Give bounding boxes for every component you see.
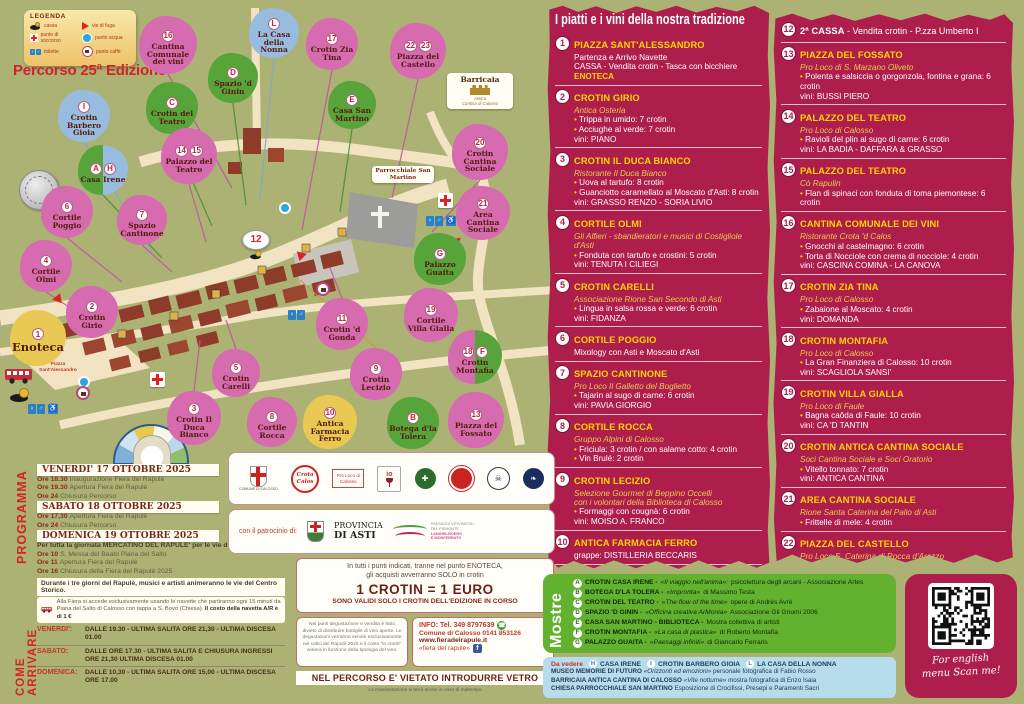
marker-number-badge: 23: [419, 40, 432, 52]
menu-item-line: vini: SCAGLIOLA SANSI': [800, 368, 1006, 378]
map-marker: 21Area Cantina Sociale: [456, 186, 510, 240]
map-marker: 10Antica Farmacia Ferro: [303, 395, 357, 449]
marker-badges: L: [268, 18, 280, 30]
map-markers-layer: 16Cantina Comunale dei viniLLa Casa dell…: [0, 0, 555, 460]
map-marker: 13Piazza del Fossato: [448, 392, 504, 448]
marker-number-badge: I: [78, 101, 90, 113]
marker-number-badge: 20: [474, 137, 487, 149]
shuttle-bus-icon: [41, 602, 53, 617]
menu-item-title: CANTINA COMUNALE DEI VINI: [800, 214, 1006, 232]
menu-item-title: ANTICA FARMACIA FERRO: [574, 533, 762, 551]
shuttle-times-table: VENERDI':DALLE 19.30 - ULTIMA SALITA ORE…: [37, 624, 285, 687]
marker-number-badge: 22: [404, 40, 417, 52]
menu-item-subtitle: Pro Loco di Calosso: [800, 349, 1006, 358]
menu-item-subtitle: Pro Loco di Calosso: [800, 295, 1006, 304]
marker-number-badge: 9: [370, 363, 382, 375]
menu-item: 4CORTILE OLMIGli Alfieri - sbandieratori…: [555, 211, 762, 274]
marker-badges: B: [407, 412, 419, 424]
da-vedere-spot: LLA CASA DELLA NONNA: [746, 660, 837, 668]
marker-badges: 8: [266, 411, 278, 423]
item-number-badge: 14: [781, 109, 796, 124]
marker-number-badge: 19: [425, 304, 438, 316]
marker-badges: 11: [336, 313, 348, 325]
marker-number-badge: 4: [40, 255, 52, 267]
program-row: Ore 16 Chiusura della Fiera del Rapulè 2…: [37, 568, 285, 576]
menu-item-line: Mixology con Asti e Moscato d'Asti: [574, 348, 762, 358]
da-vedere-label: Da vedere: [551, 661, 583, 668]
marker-number-badge: F: [476, 346, 488, 358]
da-vedere-box: Da vedereHCASA IRENEICROTIN BARBERO GIOI…: [543, 657, 896, 698]
menu-item-body: 2ª CASSA - Vendita crotin - P.zza Umbert…: [800, 21, 1006, 39]
website-link[interactable]: www.fieradelrapule.it: [419, 637, 547, 644]
marker-label: Crotin Lecizio: [350, 376, 402, 392]
qr-code[interactable]: [928, 583, 994, 649]
menu-item: 19CROTIN VILLA GIALLAPro Loco di FauleBa…: [781, 381, 1006, 434]
marker-number-badge: 13: [470, 409, 483, 421]
phone-icon: ☎: [497, 621, 506, 630]
menu-item-line: vini: BUSSI PIERO: [800, 92, 1006, 102]
marker-label: Palazzo del Teatro: [161, 158, 217, 174]
menu-item-subtitle: con i volontari della Biblioteca di Calo…: [574, 498, 762, 507]
marker-badges: 6: [61, 201, 73, 213]
menu-item-title: CORTILE OLMI: [574, 214, 762, 232]
menu-item-line: Torta di Nocciole con crema di nocciole:…: [800, 252, 1006, 262]
menu-item: 14PALAZZO DEL TEATROPro Loco di CalossoR…: [781, 105, 1006, 158]
menu-item-title: PIAZZA SANT'ALESSANDRO: [574, 35, 762, 53]
menu-item-body: PALAZZO DEL TEATROCò RapulinFlan di spin…: [800, 161, 1006, 208]
item-number-badge: 13: [781, 46, 796, 61]
marker-badges: 16: [162, 30, 175, 42]
marker-label: Crotin Zia Tina: [306, 46, 358, 62]
menu-item-subtitle: Rione Santa Caterina del Palio di Asti: [800, 508, 1006, 517]
langhe-roero-monferrato-logo: PAESAGGI VITIVINICOLIDEL PIEMONTELANGHE-…: [393, 522, 475, 540]
menu-item-line: Tajarin al sugo di carne: 6 crotin: [574, 391, 762, 401]
marker-number-badge: 16: [162, 30, 175, 42]
map-marker: ECasa San Martino: [328, 81, 376, 129]
programma-label: PROGRAMMA: [15, 468, 29, 564]
spot-letter-badge: I: [647, 660, 655, 668]
da-vedere-spot: ICROTIN BARBERO GIOIA: [647, 660, 740, 668]
map-marker: BBotega d'la Tolera: [387, 397, 439, 449]
shuttle-time-row: VENERDI':DALLE 19.30 - ULTIMA SALITA ORE…: [37, 624, 285, 644]
crotin-rate: 1 CROTIN = 1 EURO: [297, 582, 553, 597]
menu-item: 9CROTIN LECIZIOSelezione Gourmet di Bepp…: [555, 468, 762, 531]
marker-label: Cantina Comunale dei vini: [139, 43, 197, 67]
shuttle-time-row: SABATO:DALLE ORE 17.30 - ULTIMA SALITA E…: [37, 645, 285, 666]
menu-item-body: CROTIN 'D GONDAAssociazione Amici di Cal…: [574, 567, 762, 570]
menu-item-line: Partenza e Arrivo Navette: [574, 53, 762, 63]
patrocinio-label: con il patrocinio di:: [239, 528, 297, 535]
menu-item: 1PIAZZA SANT'ALESSANDROPartenza e Arrivo…: [555, 32, 762, 86]
item-number-badge: 1: [555, 36, 570, 51]
marker-number-badge: D: [227, 67, 239, 79]
marker-label: Casa Irene: [79, 176, 128, 184]
qr-panel: For englishmenu Scan me!: [905, 574, 1017, 698]
info-box: INFO: Tel. 349 8797639☎ Comune di Caloss…: [412, 617, 554, 667]
menu-item-title: CROTIN VILLA GIALLA: [800, 384, 1006, 402]
menu-item-title: CROTIN 'D GONDA: [574, 567, 762, 570]
menu-item-line: vini: MOISO A. FRANCO: [574, 517, 762, 527]
program-day-header: VENERDI' 17 OTTOBRE 2025: [37, 464, 219, 476]
menu-item-line: grappe: DISTILLERIA BECCARIS: [574, 551, 762, 561]
program-row: Ore 11 Apertura Fiera del Rapulè: [37, 559, 285, 567]
map-marker: 17Crotin Zia Tina: [306, 18, 358, 70]
marker-label: Crotin Cantina Sociale: [452, 150, 508, 174]
item-number-badge: 5: [555, 278, 570, 293]
item-number-badge: 9: [555, 472, 570, 487]
menu-item-subtitle: Pro Loco di Faule: [800, 402, 1006, 411]
da-vedere-rows: MUSEO MEMORIE DI FUTURO «Orizzonti ed em…: [551, 668, 888, 694]
marker-number-badge: B: [407, 412, 419, 424]
item-number-badge: 3: [555, 152, 570, 167]
marker-label: Spazio Cantinone: [117, 222, 167, 238]
marker-badges: E: [346, 94, 358, 106]
menu-item-title: CORTILE POGGIO: [574, 330, 762, 348]
map-marker: 11Crotin 'd Gonda: [316, 298, 368, 350]
menu-item-line: Flan di spinaci con fonduta di toma piem…: [800, 189, 1006, 208]
da-vedere-row: CHIESA PARROCCHIALE SAN MARTINO Esposizi…: [551, 685, 888, 694]
mostre-item: FCROTIN MONTAFIA -«La casa di plastica»d…: [573, 628, 888, 638]
marker-number-badge: 21: [477, 198, 490, 210]
marker-label: Crotin Carelli: [212, 375, 260, 391]
marker-number-badge: 10: [324, 407, 337, 419]
shuttle-text: Alla Fiera si accede esclusivamente usan…: [57, 599, 281, 621]
marker-number-badge: 3: [188, 403, 200, 415]
item-number-badge: 8: [555, 418, 570, 433]
marker-number-badge: C: [166, 97, 178, 109]
map-marker: 8Cortile Rocca: [247, 397, 297, 447]
item-number-badge: 18: [781, 332, 796, 347]
menu-item: 13PIAZZA DEL FOSSATOPro Loco di S. Marza…: [781, 43, 1006, 106]
marker-badges: 2: [86, 301, 98, 313]
marker-badges: C: [166, 97, 178, 109]
menu-item-line: vini: TENUTA I CILIEGI: [574, 260, 762, 270]
map-marker: DSpazio 'd Ginin: [208, 53, 258, 103]
marker-number-badge: 14: [175, 145, 188, 157]
menu-column-1: 1PIAZZA SANT'ALESSANDROPartenza e Arrivo…: [555, 32, 762, 570]
menu-item-body: AREA CANTINA SOCIALERione Santa Caterina…: [800, 490, 1006, 527]
menu-item-body: PIAZZA SANT'ALESSANDROPartenza e Arrivo …: [574, 35, 762, 82]
menu-item-body: CROTIN IL DUCA BIANCORistorante Il Duca …: [574, 151, 762, 207]
facebook-row: «fiera del rapule»f: [419, 644, 547, 653]
item-number-badge: 15: [781, 162, 796, 177]
marker-number-badge: A: [90, 163, 102, 175]
menu-item-subtitle: Antica Osteria: [574, 106, 762, 115]
menu-item: 22PIAZZA DEL CASTELLOPro Loco S. Caterin…: [781, 532, 1006, 564]
marker-number-badge: 17: [326, 33, 339, 45]
marker-number-badge: E: [346, 94, 358, 106]
marker-label: Piazza del Fossato: [448, 422, 504, 438]
menu-item: 17CROTIN ZIA TINAPro Loco di CalossoZaba…: [781, 275, 1006, 328]
spot-letter-badge: H: [589, 660, 597, 668]
provincia-asti-crest-icon: [307, 521, 324, 542]
menu-item: 8CORTILE ROCCAGruppo Alpini di CalossoFr…: [555, 415, 762, 468]
menu-item-title: CROTIN CARELLI: [574, 277, 762, 295]
menu-item-body: CORTILE ROCCAGruppo Alpini di CalossoFri…: [574, 417, 762, 464]
crotin-rules-box: In tutti i punti indicati, tranne nel pu…: [296, 558, 554, 613]
blue-club-logo: ❧: [523, 468, 544, 489]
program-day-header: SABATO 18 OTTOBRE 2025: [37, 501, 219, 513]
mostre-item: CCROTIN DEL TEATRO -«The flow of the tim…: [573, 598, 888, 608]
menu-item: 18CROTIN MONTAFIAPro Loco di CalossoLa G…: [781, 328, 1006, 381]
map-marker: 6Cortile Poggio: [41, 186, 93, 238]
menu-item-title: PIAZZA DEL CASTELLO: [800, 534, 1006, 552]
menu-item-title: SPAZIO CANTINONE: [574, 364, 762, 382]
menu-item-line: vini: PAVIA GIORGIO: [574, 401, 762, 411]
map-marker: LLa Casa della Nonna: [249, 8, 299, 58]
map-marker: 7Spazio Cantinone: [117, 195, 167, 245]
crotin-line3: SONO VALIDI SOLO I CROTIN DELL'EDIZIONE …: [297, 598, 553, 605]
mostre-item: ACROTIN CASA IRENE -«Il viaggio nell'ani…: [573, 578, 888, 588]
marker-badges: 19: [425, 304, 438, 316]
menu-item-subtitle: Associazione Rione San Secondo di Asti: [574, 295, 762, 304]
menu-item: 15PALAZZO DEL TEATROCò RapulinFlan di sp…: [781, 159, 1006, 212]
da-vedere-row: BARRICAIA ANTICA CANTINA DI CALOSSO «Vit…: [551, 677, 888, 686]
marker-label: Spazio 'd Ginin: [208, 80, 258, 96]
menu-item-body: CROTIN CARELLIAssociazione Rione San Sec…: [574, 277, 762, 324]
marker-badges: 2223: [404, 40, 432, 52]
comune-calosso-logo: COMUNE DI CALOSSO: [239, 466, 278, 492]
map-marker: 1415Palazzo del Teatro: [161, 128, 217, 184]
marker-number-badge: 11: [336, 313, 348, 325]
da-vedere-spots: Da vedereHCASA IRENEICROTIN BARBERO GIOI…: [551, 660, 888, 668]
crotin-line1: In tutti i punti indicati, tranne nel pu…: [297, 563, 553, 572]
menu-item-body: PALAZZO DEL TEATROPro Loco di CalossoRav…: [800, 108, 1006, 155]
marker-badges: 1415: [175, 145, 203, 157]
mostre-item: DSPAZIO 'D GININ -«Officina creativa ArM…: [573, 608, 888, 618]
marker-badges: 5: [230, 362, 242, 374]
item-number-badge: 2: [555, 89, 570, 104]
menu-item-title: PALAZZO DEL TEATRO: [800, 161, 1006, 179]
map-marker: 2223Piazza del Castello: [390, 23, 446, 79]
menu-item-body: CROTIN ZIA TINAPro Loco di CalossoZabaio…: [800, 277, 1006, 324]
menu-panel-left: I piatti e i vini della nostra tradizion…: [547, 4, 770, 570]
info-phone: INFO: Tel. 349 8797639☎: [419, 621, 547, 630]
menu-item-body: PIAZZA DEL CASTELLOPro Loco S. Caterina …: [800, 534, 1006, 564]
map-marker: GPalazzo Guaita: [414, 233, 466, 285]
pro-loco-calosso-logo: Pro Loco di Calosso: [332, 469, 364, 488]
menu-item-line: Zabaione al Moscato: 4 crotin: [800, 305, 1006, 315]
marker-label: Crotin del Teatro: [146, 110, 198, 126]
no-glass-bar: NEL PERCORSO E' VIETATO INTRODURRE VETRO: [296, 671, 554, 685]
map-marker: 9Crotin Lecizio: [350, 348, 402, 400]
marker-label: Cortile Rocca: [247, 424, 297, 440]
sponsor-logos-bar: COMUNE DI CALOSSO Crota Calos Pro Loco d…: [228, 452, 555, 505]
marker-number-badge: 15: [190, 145, 203, 157]
festival-poster: LEGENDA cassa vie di fuga punto di socco…: [0, 0, 1024, 704]
marker-number-badge: H: [104, 163, 116, 175]
menu-item-line: Trippa in umido: 7 crotin: [574, 115, 762, 125]
mostre-item: BBOTEGA D'LA TOLERA -«Impronta»di Massim…: [573, 588, 888, 598]
menu-item-subtitle: Soci Cantina Sociale e Soci Oratorio: [800, 455, 1006, 464]
shuttle-info-box: Alla Fiera si accede esclusivamente usan…: [37, 597, 285, 623]
menu-item-body: PIAZZA DEL FOSSATOPro Loco di S. Marzano…: [800, 45, 1006, 101]
marker-badges: I: [78, 101, 90, 113]
io-calosso-logo: io: [377, 466, 401, 492]
menu-item: 20CROTIN ANTICA CANTINA SOCIALESoci Cant…: [781, 435, 1006, 488]
menu-item-subtitle: Cò Rapulin: [800, 179, 1006, 188]
menu-item-title: PIAZZA DEL FOSSATO: [800, 45, 1006, 63]
marker-label: Piazza del Castello: [390, 53, 446, 69]
menu-item: 3CROTIN IL DUCA BIANCORistorante Il Duca…: [555, 148, 762, 211]
marker-number-badge: 5: [230, 362, 242, 374]
marker-number-badge: L: [268, 18, 280, 30]
marker-number-badge: 6: [61, 201, 73, 213]
mostre-letter-badge: D: [573, 609, 582, 618]
menu-item-line: Acciughe al verde: 7 crotin: [574, 125, 762, 135]
item-number-badge: 20: [781, 438, 796, 453]
marker-badges: 3: [188, 403, 200, 415]
item-number-badge: 17: [781, 278, 796, 293]
menu-item-subtitle: Pro Loco Il Galletto del Boglietto: [574, 382, 762, 391]
menu-item-title: CROTIN IL DUCA BIANCO: [574, 151, 762, 169]
menu-item-subtitle: Ristorante Crota 'd Calos: [800, 232, 1006, 241]
marker-badges: 17: [326, 33, 339, 45]
mostre-letter-badge: B: [573, 589, 582, 598]
marker-badges: 7: [136, 209, 148, 221]
menu-item: 2CROTIN GIRIOAntica OsteriaTrippa in umi…: [555, 86, 762, 149]
comune-crest-icon: [250, 466, 267, 487]
menu-item-line: Polenta e salsiccia o gorgonzola, fontin…: [800, 72, 1006, 91]
menu-item-title: CROTIN MONTAFIA: [800, 331, 1006, 349]
da-vedere-spot: HCASA IRENE: [589, 660, 641, 668]
map-marker: 3Crotin Il Duca Bianco: [167, 391, 221, 445]
wine-glass-icon: [386, 478, 393, 487]
menu-item-line: Gnocchi al castelmagno: 6 crotin: [800, 242, 1006, 252]
marker-label: Area Cantina Sociale: [456, 211, 510, 235]
da-vedere-row: MUSEO MEMORIE DI FUTURO «Orizzonti ed em…: [551, 668, 888, 677]
alpini-logo: ✚: [415, 468, 436, 489]
marker-label: Cortile Olmi: [20, 268, 72, 284]
menu-item-subtitle: Selezione Gourmet di Beppino Occelli: [574, 489, 762, 498]
marker-label: Cortile Villa Gialla: [404, 317, 458, 333]
program-day-header: DOMENICA 19 OTTOBRE 2025: [37, 530, 219, 542]
menu-item-body: CORTILE OLMIGli Alfieri - sbandieratori …: [574, 214, 762, 270]
item-number-badge: 10: [555, 534, 570, 549]
marker-badges: G: [434, 248, 446, 260]
menu-item-line: vini: GRASSO RENZO - SORIA LIVIO: [574, 198, 762, 208]
menu-item: 21AREA CANTINA SOCIALERione Santa Cateri…: [781, 488, 1006, 532]
menu-item-title: 2ª CASSA - Vendita crotin - P.zza Umbert…: [800, 21, 1006, 39]
marker-label: Palazzo Guaita: [414, 261, 466, 277]
menu-item-line: vini: CA 'D TANTIN: [800, 421, 1006, 431]
menu-item-line: Lingua in salsa rossa e verde: 6 crotin: [574, 304, 762, 314]
menu-item-line: ENOTECA: [574, 72, 762, 82]
crota-calos-logo: Crota Calos: [291, 465, 319, 493]
menu-item-body: CROTIN VILLA GIALLAPro Loco di FauleBagn…: [800, 384, 1006, 431]
menu-item-subtitle: Gruppo Alpini di Calosso: [574, 435, 762, 444]
marker-badges: 20: [474, 137, 487, 149]
marker-badges: 13: [470, 409, 483, 421]
menu-item-body: CROTIN LECIZIOSelezione Gourmet di Beppi…: [574, 471, 762, 527]
menu-item: 6CORTILE POGGIOMixology con Asti e Mosca…: [555, 327, 762, 361]
mostre-letter-badge: C: [573, 599, 582, 608]
marker-number-badge: 1: [32, 328, 44, 340]
tasting-rules-box: Nei punti degustazione e vendita è fatto…: [296, 617, 408, 667]
map-marker: 4Cortile Olmi: [20, 240, 72, 292]
menu-item-line: Vin Brulé: 2 crotin: [574, 454, 762, 464]
marker-badges: 1: [32, 328, 44, 340]
item-number-badge: 12: [781, 22, 796, 37]
menu-item-line: Uova al tartufo: 8 crotin: [574, 178, 762, 188]
map-marker: 19Cortile Villa Gialla: [404, 288, 458, 342]
menu-item-title: CROTIN LECIZIO: [574, 471, 762, 489]
menu-item-line: Friciula: 3 crotin / con salame cotto: 4…: [574, 445, 762, 455]
facebook-icon[interactable]: f: [473, 644, 482, 653]
marker-number-badge: 18: [462, 346, 475, 358]
marker-badges: 4: [40, 255, 52, 267]
marker-label: Crotin 'd Gonda: [316, 326, 368, 342]
menu-item: 122ª CASSA - Vendita crotin - P.zza Umbe…: [781, 18, 1006, 43]
menu-item-line: vini: LA BADIA - DAFFARA & GRASSO: [800, 145, 1006, 155]
menu-item-line: Bagna caôda di Faule: 10 crotin: [800, 411, 1006, 421]
menu-item-subtitle: Pro Loco di S. Marzano Oliveto: [800, 63, 1006, 72]
item-number-badge: 21: [781, 491, 796, 506]
menu-item-title: CROTIN ZIA TINA: [800, 277, 1006, 295]
marker-label: Crotin Montafia: [448, 359, 502, 375]
menu-item: 5CROTIN CARELLIAssociazione Rione San Se…: [555, 274, 762, 327]
marker-badges: 18F: [462, 346, 489, 358]
hills-icon: [393, 523, 427, 541]
provincia-asti-logo: PROVINCIADI ASTI: [334, 522, 383, 540]
menu-item-line: vini: PIANO: [574, 135, 762, 145]
menu-item-line: Formaggi con cougnà: 6 crotin: [574, 507, 762, 517]
menu-item-line: Vitello tonnato: 7 crotin: [800, 465, 1006, 475]
marker-label: Cortile Poggio: [41, 214, 93, 230]
marker-label: Crotin Il Duca Bianco: [167, 416, 221, 440]
menu-column-2: 122ª CASSA - Vendita crotin - P.zza Umbe…: [781, 18, 1006, 564]
menu-title: I piatti e i vini della nostra tradizion…: [555, 12, 712, 28]
menu-item: 16CANTINA COMUNALE DEI VINIRistorante Cr…: [781, 212, 1006, 275]
mostre-box: ACROTIN CASA IRENE -«Il viaggio nell'ani…: [543, 574, 896, 653]
marker-label: Crotin Barbero Gioia: [58, 114, 110, 138]
item-number-badge: 22: [781, 535, 796, 550]
mostre-letter-badge: F: [573, 629, 582, 638]
marker-label: Botega d'la Tolera: [387, 425, 439, 441]
menu-item-title: AREA CANTINA SOCIALE: [800, 490, 1006, 508]
menu-item: 11CROTIN 'D GONDAAssociazione Amici di C…: [555, 565, 762, 570]
marker-label: La Casa della Nonna: [249, 31, 299, 55]
program-note-bar: Durante i tre giorni del Rapulè, musici …: [37, 578, 285, 596]
menu-item-line: Frittelle di mele: 4 crotin: [800, 518, 1006, 528]
marker-number-badge: G: [434, 248, 446, 260]
come-arrivare-label: COME ARRIVARE: [15, 596, 39, 696]
info-comune: Comune di Calosso 0141 853126: [419, 630, 547, 637]
menu-item-subtitle: Pro Loco di Calosso: [800, 126, 1006, 135]
spot-letter-badge: L: [746, 660, 754, 668]
mostre-letter-badge: A: [573, 579, 582, 588]
qr-caption: For englishmenu Scan me!: [904, 651, 1017, 682]
mostre-letter-badge: E: [573, 619, 582, 628]
menu-item-body: CORTILE POGGIOMixology con Asti e Moscat…: [574, 330, 762, 358]
map-marker: 1Enoteca: [10, 310, 66, 366]
patrocinio-bar: con il patrocinio di: PROVINCIADI ASTI P…: [228, 509, 555, 554]
menu-item-body: CROTIN MONTAFIAPro Loco di CalossoLa Gra…: [800, 331, 1006, 378]
map-marker: 16Cantina Comunale dei vini: [139, 16, 197, 74]
menu-item-body: CANTINA COMUNALE DEI VINIRistorante Crot…: [800, 214, 1006, 270]
menu-item-body: CROTIN GIRIOAntica OsteriaTrippa in umid…: [574, 88, 762, 144]
item-number-badge: 4: [555, 215, 570, 230]
menu-item-line: vini: FIDANZA: [574, 314, 762, 324]
menu-item-title: PALAZZO DEL TEATRO: [800, 108, 1006, 126]
marker-label: Casa San Martino: [328, 107, 376, 123]
menu-item-title: CROTIN GIRIO: [574, 88, 762, 106]
marker-label: Crotin Girio: [66, 314, 118, 330]
map-marker: 5Crotin Carelli: [212, 349, 260, 397]
menu-item-subtitle: Gli Alfieri - sbandieratori e musici di …: [574, 232, 762, 251]
mostre-item: ECASA SAN MARTINO - BIBLIOTECA -Mostra c…: [573, 618, 888, 628]
item-number-badge: 7: [555, 365, 570, 380]
